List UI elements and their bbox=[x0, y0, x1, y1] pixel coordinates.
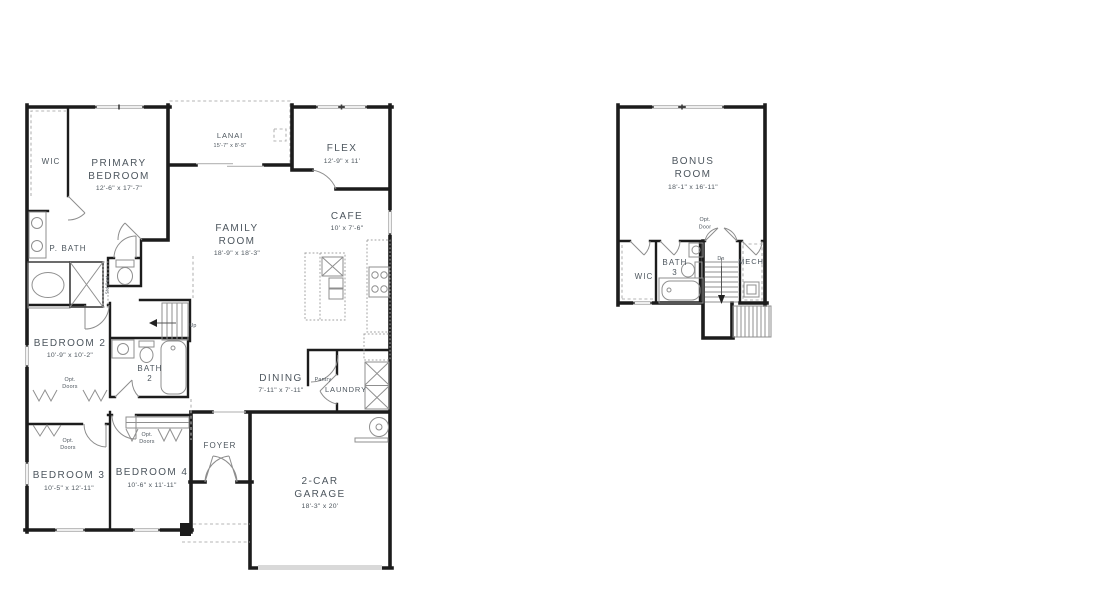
svg-text:Doors: Doors bbox=[60, 445, 75, 451]
porch bbox=[180, 523, 250, 542]
dims-bonus-room: 18'-1" x 16'-11" bbox=[668, 184, 718, 191]
water-closet-door bbox=[114, 236, 136, 258]
label-wic: WIC bbox=[42, 157, 61, 166]
mech-door bbox=[742, 241, 762, 255]
kitchen-counter bbox=[364, 240, 390, 360]
washer-dryer bbox=[365, 362, 389, 409]
window-wic2 bbox=[633, 302, 652, 305]
bath3-door bbox=[660, 241, 680, 255]
wic-door bbox=[68, 196, 85, 220]
label-bedroom3: BEDROOM 3 bbox=[33, 470, 106, 481]
svg-text:ROOM: ROOM bbox=[219, 236, 256, 247]
garage-shelf bbox=[355, 438, 388, 442]
label-bedroom4: BEDROOM 4 bbox=[116, 467, 189, 478]
label-laundry: LAUNDRY bbox=[325, 385, 367, 394]
window-bedroom3 bbox=[55, 529, 85, 532]
label-family-room: FAMILY bbox=[215, 223, 258, 234]
label-primary-bath: P. BATH bbox=[49, 244, 86, 253]
sliding-door-lanai bbox=[196, 164, 264, 167]
stairs-down bbox=[705, 258, 771, 337]
window-bedroom2 bbox=[26, 345, 29, 367]
dims-lanai: 15'-7" x 8'-5" bbox=[214, 143, 247, 149]
label-lanai: LANAI bbox=[217, 131, 243, 140]
svg-text:Door: Door bbox=[699, 225, 711, 231]
dims-flex: 12'-9" x 11' bbox=[324, 158, 360, 165]
dims-primary-bedroom: 12'-6" x 17'-7" bbox=[96, 185, 143, 192]
kitchen-island bbox=[305, 253, 345, 320]
bath2-door bbox=[115, 380, 139, 397]
svg-text:Doors: Doors bbox=[139, 439, 154, 445]
window-bedroom4 bbox=[133, 529, 160, 532]
water-heater-icon bbox=[744, 282, 759, 297]
primary-bedroom-door bbox=[118, 223, 142, 240]
svg-text:Doors: Doors bbox=[62, 384, 77, 390]
bedroom4-door bbox=[112, 415, 136, 439]
second-floor-plan: BONUS ROOM 18'-1" x 16'-11" WIC BATH 3 M… bbox=[618, 105, 771, 339]
front-door bbox=[205, 456, 237, 482]
doors bbox=[68, 170, 338, 482]
label-cafe: CAFE bbox=[331, 211, 363, 222]
primary-bath-fixtures bbox=[27, 212, 134, 308]
bathtub bbox=[659, 278, 703, 303]
wic2-door bbox=[630, 241, 650, 255]
porch-column bbox=[180, 523, 191, 536]
label-opt-door: Opt. bbox=[700, 217, 711, 223]
label-dn: Dn bbox=[717, 256, 724, 262]
garage-door bbox=[258, 565, 382, 570]
label-dining: DINING bbox=[259, 373, 302, 384]
stairs-up bbox=[149, 303, 188, 340]
vanity-sink-icon bbox=[32, 241, 43, 252]
mech-room bbox=[743, 244, 762, 300]
stairs-up-arrow bbox=[149, 319, 157, 327]
vanity-sink-icon bbox=[32, 218, 43, 229]
svg-text:BEDROOM: BEDROOM bbox=[88, 171, 149, 182]
label-mech: MECH bbox=[738, 257, 764, 266]
window-cafe bbox=[389, 210, 392, 235]
label-opt-doors-bed2: Opt. bbox=[65, 377, 76, 383]
wic-shelves bbox=[31, 111, 66, 196]
dims-garage: 18'-3" x 20' bbox=[302, 503, 339, 510]
dishwasher bbox=[329, 278, 343, 288]
label-garage: 2-CAR bbox=[301, 476, 338, 487]
bathtub bbox=[161, 341, 186, 394]
label-std-seat: Std Seat bbox=[105, 275, 110, 294]
bedroom3-door bbox=[84, 424, 106, 447]
floor-plan-page: WIC PRIMARY BEDROOM 12'-6" x 17'-7" LANA… bbox=[0, 0, 1097, 600]
dims-bedroom2: 10'-9" x 10'-2" bbox=[47, 352, 94, 359]
label-wic2: WIC bbox=[635, 272, 654, 281]
refrigerator bbox=[364, 334, 390, 360]
stairs-down-arrow bbox=[718, 295, 725, 304]
toilet-icon bbox=[116, 260, 134, 285]
label-bonus-room: BONUS bbox=[672, 156, 715, 167]
label-opt-doors-bed3: Opt. bbox=[63, 438, 74, 444]
window-bedroom3-side bbox=[26, 462, 29, 486]
label-bath2: BATH bbox=[137, 364, 162, 373]
label-flex: FLEX bbox=[327, 143, 358, 154]
stairs-lower-run bbox=[733, 306, 771, 337]
windows bbox=[26, 105, 392, 532]
flex-door bbox=[312, 170, 336, 189]
sink-counter bbox=[112, 340, 134, 358]
bedroom2-door bbox=[85, 305, 109, 329]
svg-text:2: 2 bbox=[147, 374, 153, 383]
label-opt-doors-bed4: Opt. bbox=[142, 432, 153, 438]
bath3-fixtures bbox=[659, 243, 703, 303]
label-bedroom2: BEDROOM 2 bbox=[34, 338, 107, 349]
lanai-post bbox=[274, 129, 286, 141]
interior-walls bbox=[27, 107, 390, 530]
water-heater-icon bbox=[370, 418, 389, 437]
dims-family-room: 18'-9" x 18'-3" bbox=[214, 250, 261, 257]
svg-text:ROOM: ROOM bbox=[675, 169, 712, 180]
sink-icon bbox=[118, 344, 129, 355]
svg-text:3: 3 bbox=[672, 268, 678, 277]
label-bath3: BATH bbox=[662, 258, 687, 267]
first-floor-plan: WIC PRIMARY BEDROOM 12'-6" x 17'-7" LANA… bbox=[25, 101, 392, 570]
label-primary-bedroom: PRIMARY bbox=[91, 158, 146, 169]
toilet-icon bbox=[139, 341, 154, 363]
svg-text:GARAGE: GARAGE bbox=[294, 489, 345, 500]
floor-plan-drawing: WIC PRIMARY BEDROOM 12'-6" x 17'-7" LANA… bbox=[0, 0, 1097, 600]
label-pantry: Pantry bbox=[315, 377, 332, 383]
window-bonus bbox=[652, 106, 724, 109]
label-foyer: FOYER bbox=[203, 441, 236, 450]
range-icon bbox=[369, 267, 389, 297]
dims-bedroom3: 10'-5" x 12'-11" bbox=[44, 485, 94, 492]
dims-dining: 7'-11" x 7'-11" bbox=[258, 387, 304, 394]
dims-cafe: 10' x 7'-6" bbox=[331, 225, 364, 232]
dims-bedroom4: 10'-6" x 11'-11" bbox=[127, 482, 177, 489]
label-up: Up bbox=[189, 323, 196, 329]
